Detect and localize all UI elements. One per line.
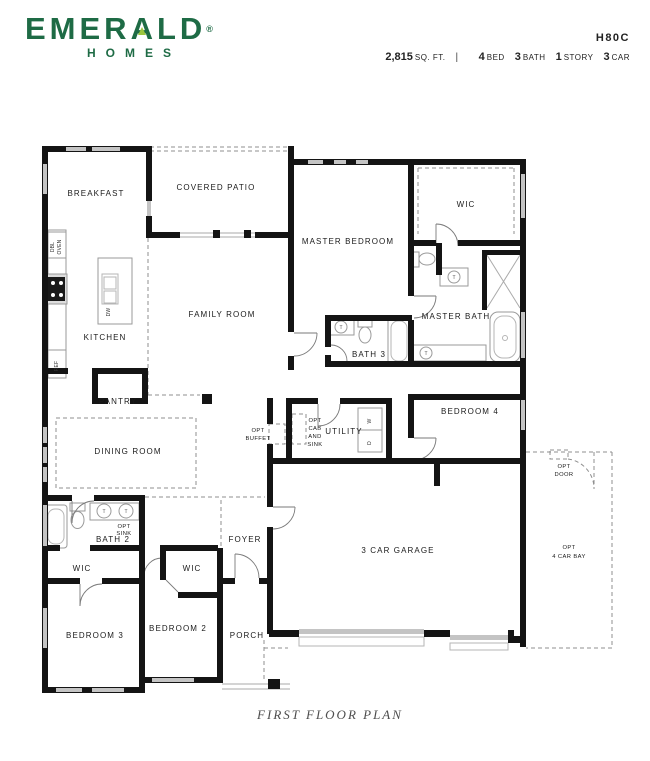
label-opt-4car-2: 4 CAR BAY [552,554,585,560]
label-bedroom4: BEDROOM 4 [441,407,499,416]
label-wic-master: WIC [457,200,476,209]
label-wic-bed3: WIC [73,564,92,573]
label-opt-cab-4: SINK [307,442,322,448]
label-opt-cab-1: OPT [308,418,321,424]
label-opt-4car-1: OPT [562,545,575,551]
label-master-bath: MASTER BATH [422,312,490,321]
label-porch: PORCH [230,631,264,640]
label-opt-sink-2: SINK [116,531,131,537]
label-opt-door-2: DOOR [555,472,574,478]
cooktop-icon [46,274,67,304]
label-bath3: BATH 3 [352,350,386,359]
bath2-tub-icon [45,505,67,548]
master-vanity2-icon [412,345,486,361]
faucet-t-bath2b: T [124,509,127,515]
master-toilet-icon [412,252,435,267]
floor-plan-page: EMERALD® HOMES H80C 2,815SQ. FT.|4BED3BA… [0,0,650,761]
label-bedroom3: BEDROOM 3 [66,631,124,640]
label-family-room: FAMILY ROOM [189,310,256,319]
floor-plan: BREAKFAST COVERED PATIO MASTER BEDROOM W… [0,0,650,761]
kitchen-island [98,258,132,324]
label-opt-cab-3: AND [308,434,321,440]
label-master-bedroom: MASTER BEDROOM [302,237,394,246]
faucet-t-master1: T [452,275,455,281]
plan-caption: FIRST FLOOR PLAN [256,707,403,722]
label-breakfast: BREAKFAST [67,189,124,198]
label-opt-door-1: OPT [557,464,570,470]
label-garage: 3 CAR GARAGE [361,546,434,555]
walls-layer [42,146,526,693]
windows-layer [43,147,525,692]
label-utility: UTILITY [325,427,362,436]
label-bedroom2: BEDROOM 2 [149,624,207,633]
label-wic-bed2: WIC [183,564,202,573]
label-opt-buffet-1: OPT [251,428,264,434]
label-opt-buffet-2: BUFFET [246,436,271,442]
label-kitchen: KITCHEN [84,333,127,342]
label-ref: REF [54,361,60,372]
floor-plan-svg: BREAKFAST COVERED PATIO MASTER BEDROOM W… [0,0,650,761]
label-dryer: D [367,441,373,445]
garage-door-icons [299,629,508,650]
label-opt-cab-2: CAB [308,426,321,432]
label-oven: OVEN [57,239,63,254]
bath2-vanity-icon [90,503,139,520]
label-foyer: FOYER [228,535,261,544]
label-opt-sink-1: OPT [117,524,130,530]
faucet-t-bath3: T [339,325,342,331]
label-covered-patio: COVERED PATIO [177,183,256,192]
master-shower-icon [487,255,520,308]
label-pantry: PANTRY [99,397,137,406]
faucet-t-bath2a: T [102,509,105,515]
label-dbl: DBL [50,242,56,252]
master-tub-icon [490,312,520,362]
fixtures-layer [45,201,520,689]
label-washer: W [367,418,373,423]
label-dw: DW [106,308,112,317]
faucet-t-master2: T [424,351,427,357]
label-dining-room: DINING ROOM [94,447,161,456]
